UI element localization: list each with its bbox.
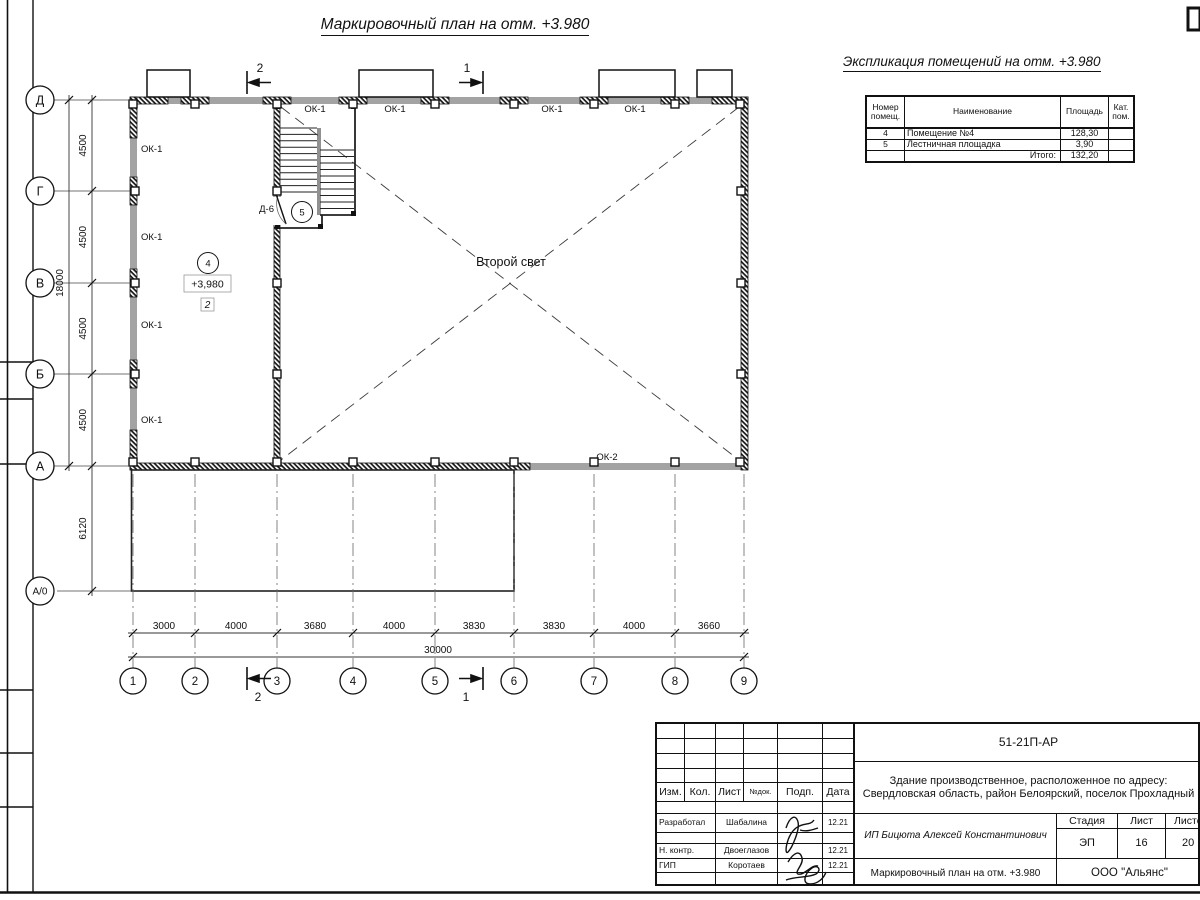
ok2-label: ОК-2 — [596, 452, 617, 463]
axis-lines — [133, 474, 744, 668]
dim-4500-1: 4500 — [78, 134, 89, 157]
section-marker-labels: 2 1 2 1 — [255, 61, 471, 704]
axis-1: 1 — [130, 676, 136, 688]
axis-a0: А/0 — [32, 587, 47, 598]
ok1-top-1: ОК-1 — [304, 104, 325, 115]
dimension-lines — [69, 95, 749, 657]
dim-3680: 3680 — [304, 621, 327, 632]
title-block: Изм. Кол. Лист №док. Подп. Дата Разработ… — [655, 722, 1200, 886]
expl-cat-2 — [1109, 139, 1135, 150]
expl-header-name: Наименование — [905, 96, 1061, 128]
section-1-bottom: 1 — [463, 690, 470, 704]
expl-row-1: 4 Помещение №4 128,30 — [866, 128, 1134, 139]
dim-6120: 6120 — [78, 517, 89, 540]
expl-num-2: 5 — [866, 139, 905, 150]
expl-total-label: Итого: — [905, 150, 1061, 161]
tb-role-3: ГИП — [657, 859, 716, 873]
tb-name-3: Коротаев — [716, 859, 778, 873]
row-axis-labels: Д Г В Б А А/0 — [32, 94, 47, 598]
tb-stage-value: ЭП — [1057, 829, 1118, 859]
section-2-bottom: 2 — [255, 690, 262, 704]
dimension-ticks — [65, 96, 748, 661]
axis-g: Г — [37, 185, 44, 199]
dim-3830b: 3830 — [543, 621, 566, 632]
dim-4000b: 4000 — [383, 621, 406, 632]
top-pilasters — [147, 70, 732, 97]
col-axis-bubbles — [120, 668, 757, 694]
door-label: Д-6 — [259, 204, 274, 215]
elevation-mark: +3,980 — [191, 279, 224, 291]
tb-hdr-list: Лист — [716, 783, 744, 802]
expl-name-2: Лестничная площадка — [905, 139, 1061, 150]
ok1-left-4: ОК-1 — [141, 415, 162, 426]
axis-d: Д — [36, 94, 45, 108]
tb-drawing-name: Маркировочный план на отм. +3.980 — [855, 859, 1057, 886]
axis-3: 3 — [274, 676, 280, 688]
dim-3660: 3660 — [698, 621, 721, 632]
ok1-top-4: ОК-1 — [624, 104, 645, 115]
expl-header-area: Площадь — [1061, 96, 1109, 128]
dim-3830a: 3830 — [463, 621, 486, 632]
section-markers — [247, 71, 483, 690]
axis-v: В — [36, 277, 44, 291]
axis-8: 8 — [672, 676, 678, 688]
ok1-left-3: ОК-1 — [141, 320, 162, 331]
room-markers: 4 +3,980 2 5 — [184, 202, 313, 312]
expl-num-1: 4 — [866, 128, 905, 139]
floor-type-mark: 2 — [204, 300, 211, 311]
tb-hdr-izm: Изм. — [657, 783, 685, 802]
section-1-top: 1 — [464, 61, 471, 75]
expl-total-value: 132,20 — [1061, 150, 1109, 161]
ok1-left-2: ОК-1 — [141, 232, 162, 243]
dim-4500-4: 4500 — [78, 408, 89, 431]
dim-4000c: 4000 — [623, 621, 646, 632]
axis-5: 5 — [432, 676, 438, 688]
dim-4500-2: 4500 — [78, 225, 89, 248]
tb-sheet-value: 16 — [1118, 829, 1166, 859]
tb-name-1: Шабалина — [716, 814, 778, 833]
axis-a: А — [36, 460, 45, 474]
ok1-top-2: ОК-1 — [384, 104, 405, 115]
tb-hdr-kol: Кол. — [685, 783, 716, 802]
staircase — [275, 104, 356, 229]
tb-date-3: 12.21 — [823, 859, 855, 873]
section-2-top: 2 — [257, 61, 264, 75]
axis-leaders-left — [54, 100, 131, 591]
expl-row-2: 5 Лестничная площадка 3,90 — [866, 139, 1134, 150]
tb-doc-number: 51-21П-АР — [855, 724, 1200, 762]
tb-hdr-podp: Подп. — [778, 783, 823, 802]
expl-name-1: Помещение №4 — [905, 128, 1061, 139]
door-d6 — [272, 197, 286, 225]
expl-header-num: Номер помещ. — [866, 96, 905, 128]
dimension-labels: 4500 4500 4500 4500 6120 18000 3000 4000… — [55, 134, 721, 656]
tb-hdr-ndoc: №док. — [744, 783, 778, 802]
room5-number: 5 — [299, 208, 304, 219]
axis-4: 4 — [350, 676, 357, 688]
dim-18000: 18000 — [55, 269, 66, 297]
explication-title: Экспликация помещений на отм. +3.980 — [843, 54, 1101, 69]
ok1-left-1: ОК-1 — [141, 144, 162, 155]
axis-7: 7 — [591, 676, 597, 688]
expl-total-row: Итого: 132,20 — [866, 150, 1134, 161]
tb-object-desc: Здание производственное, расположенное п… — [855, 762, 1200, 814]
ok1-top-3: ОК-1 — [541, 104, 562, 115]
drawing-sheet: 4500 4500 4500 4500 6120 18000 3000 4000… — [0, 0, 1200, 900]
room4-number: 4 — [205, 259, 210, 270]
axis-9: 9 — [741, 676, 747, 688]
tb-sheets-label: Листов — [1166, 814, 1200, 829]
tb-date-2: 12.21 — [823, 844, 855, 859]
dim-30000: 30000 — [424, 645, 452, 656]
tb-role-1: Разработал — [657, 814, 716, 833]
tb-name-2: Двоеглазов — [716, 844, 778, 859]
axis-b: Б — [36, 368, 44, 382]
tb-customer: ИП Бицюта Алексей Константинович — [855, 814, 1057, 859]
axis-6: 6 — [511, 676, 517, 688]
dim-4000a: 4000 — [225, 621, 248, 632]
void-cross — [281, 107, 739, 460]
plan-title: Маркировочный план на отм. +3.980 — [255, 16, 655, 34]
row-axis-bubbles — [26, 86, 54, 605]
explication-table: Номер помещ. Наименование Площадь Кат. п… — [865, 95, 1135, 163]
expl-header-cat: Кат. пом. — [1109, 96, 1135, 128]
tb-role-2: Н. контр. — [657, 844, 716, 859]
void-label: Второй свет — [476, 255, 546, 269]
tb-sheet-label: Лист — [1118, 814, 1166, 829]
lower-level-outline — [132, 470, 515, 591]
tb-hdr-data: Дата — [823, 783, 855, 802]
tb-date-1: 12.21 — [823, 814, 855, 833]
tb-company: ООО "Альянс" — [1057, 859, 1200, 886]
expl-area-2: 3,90 — [1061, 139, 1109, 150]
tb-sheets-value: 20 — [1166, 829, 1200, 859]
expl-area-1: 128,30 — [1061, 128, 1109, 139]
tb-stage-label: Стадия — [1057, 814, 1118, 829]
expl-cat-1 — [1109, 128, 1135, 139]
axis-2: 2 — [192, 676, 198, 688]
dim-4500-3: 4500 — [78, 317, 89, 340]
dim-3000: 3000 — [153, 621, 176, 632]
